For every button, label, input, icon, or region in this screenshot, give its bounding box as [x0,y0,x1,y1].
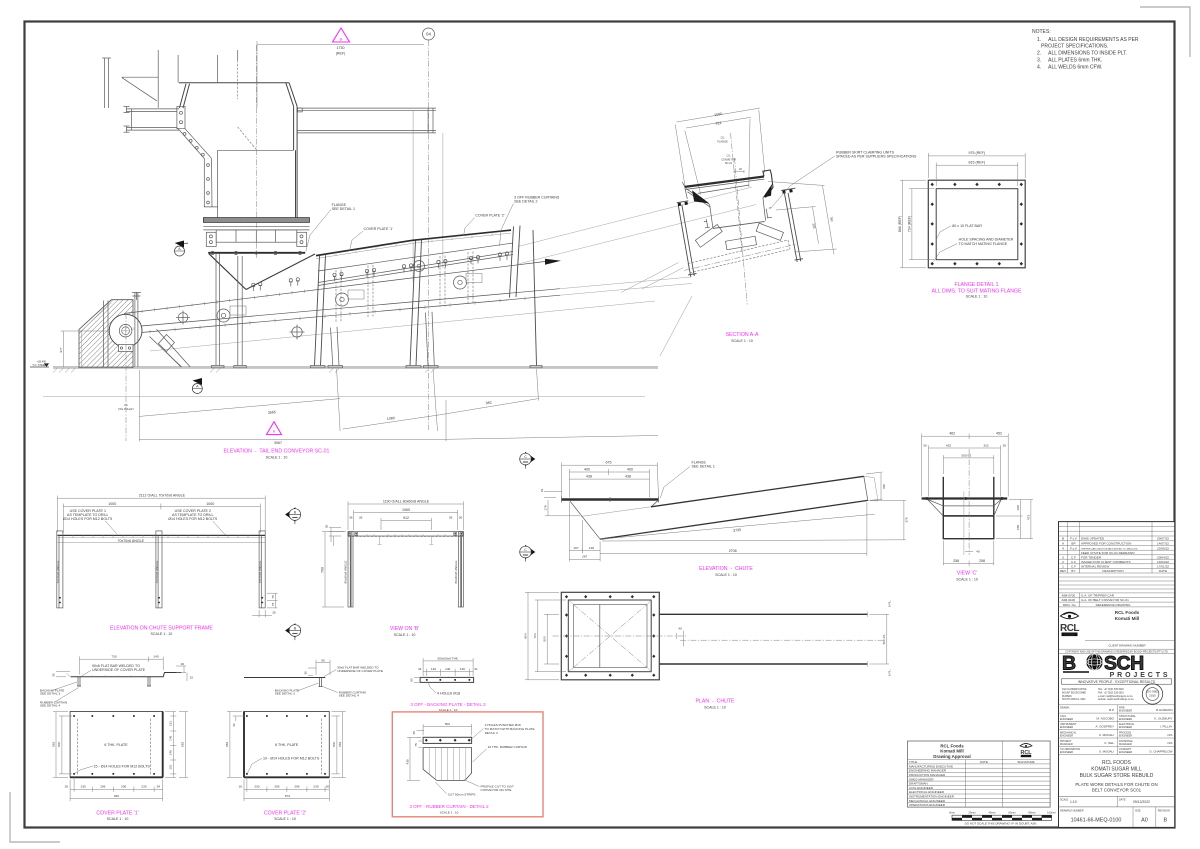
svg-text:e-mail: mail@boschprojects.co.: e-mail: mail@boschprojects.co.za [1098,695,1133,698]
svg-text:80mm: 80mm [1028,811,1035,815]
svg-text:website: www.boschholdings.co.: website: www.boschholdings.co.za [1098,698,1134,701]
svg-text:BELT CONVEYOR SC01: BELT CONVEYOR SC01 [1092,788,1142,793]
svg-text:TO MATCH MATING FLANGE: TO MATCH MATING FLANGE [959,242,1008,246]
svg-text:D. CHAPPELOW: D. CHAPPELOW [1149,750,1172,754]
svg-text:COVER PLATE '1': COVER PLATE '1' [364,227,394,231]
svg-text:KOMATI SUGAR MILL: KOMATI SUGAR MILL [1091,767,1142,773]
svg-text:PROJECTS: PROJECTS [1110,672,1171,679]
svg-text:500: 500 [445,722,450,726]
svg-text:C.F: C.F [1071,565,1076,569]
svg-text:UNDERSIDE OF COVER PLATE: UNDERSIDE OF COVER PLATE [337,669,383,673]
svg-text:258: 258 [979,559,985,563]
svg-text:ELEVATION - TAIL END CONVEYO: ELEVATION - TAIL END CONVEYOR SC-01 [224,448,330,454]
svg-text:22/06/22: 22/06/22 [1157,546,1169,550]
svg-text:0mm: 0mm [949,811,955,815]
svg-text:B: B [340,37,343,42]
svg-text:438: 438 [625,475,631,479]
svg-text:04: 04 [426,32,431,37]
svg-text:SCALE 1 : 10: SCALE 1 : 10 [151,632,173,636]
svg-text:PLATE WORK DETAILS FOR CHUTE O: PLATE WORK DETAILS FOR CHUTE ON [1075,782,1157,787]
svg-text:COVER PLATE '2': COVER PLATE '2' [264,811,306,817]
svg-text:25: 25 [412,731,416,735]
svg-text:267: 267 [582,555,587,559]
svg-text:3: 3 [1062,555,1064,559]
svg-text:258: 258 [953,559,959,563]
svg-text:30: 30 [304,671,308,675]
svg-text:C/L: C/L [726,154,731,158]
svg-text:2112 O/ALL 70x70x6 ANGLE: 2112 O/ALL 70x70x6 ANGLE [139,494,186,498]
svg-text:4 HOLES Ø18: 4 HOLES Ø18 [437,692,460,696]
svg-text:U. MUDALI: U. MUDALI [1099,733,1114,737]
svg-text:4. ALL WELDS 6mm CFW.: 4. ALL WELDS 6mm CFW. [1037,65,1102,71]
svg-text:4: 4 [1062,546,1064,550]
svg-text:473: 473 [1026,515,1030,520]
svg-text:I. PILLAY: I. PILLAY [1160,725,1172,729]
svg-text:DIMS UPDATED: DIMS UPDATED [1081,537,1105,541]
svg-text:C/L: C/L [124,403,129,407]
svg-text:140: 140 [153,655,158,659]
svg-text:866 (REF): 866 (REF) [898,216,902,233]
svg-text:1: 1 [1062,565,1064,569]
svg-text:40mm: 40mm [988,811,995,815]
svg-text:90: 90 [321,658,325,662]
svg-text:14/07/22: 14/07/22 [1157,541,1169,545]
svg-text:TITLE: TITLE [909,760,917,764]
svg-text:ENGINEER: ENGINEER [1119,710,1132,713]
svg-text:168: 168 [1016,505,1020,510]
svg-text:K. NEL: K. NEL [1104,741,1114,745]
svg-text:235: 235 [1016,525,1020,530]
svg-text:SCALE 1 : 10: SCALE 1 : 10 [966,295,988,299]
svg-text:146: 146 [431,667,436,671]
svg-text:40: 40 [678,627,682,631]
svg-text:B.P: B.P [1109,708,1114,712]
svg-text:Ø14 HOLES FOR M12 BOLTS: Ø14 HOLES FOR M12 BOLTS [168,517,218,521]
svg-text:RCL Foods: RCL Foods [1115,610,1140,615]
svg-text:40: 40 [181,662,185,666]
svg-text:20/04/22: 20/04/22 [1157,555,1169,559]
svg-text:CLIENT DRAWING NUMBER: CLIENT DRAWING NUMBER [1109,644,1146,648]
svg-text:500 I/S: 500 I/S [882,635,886,645]
svg-text:ENGINEER: ENGINEER [1060,718,1073,721]
svg-text:190: 190 [589,546,594,550]
svg-text:DATE: DATE [1119,798,1126,801]
svg-text:FLANGE DETAIL 1: FLANGE DETAIL 1 [954,282,998,288]
svg-text:20mm: 20mm [968,811,975,815]
svg-text:SCALE 1 : 10: SCALE 1 : 10 [394,633,416,637]
svg-text:60mm: 60mm [1008,811,1015,815]
svg-text:MANAGER: MANAGER [1060,743,1073,746]
svg-text:NOTES:: NOTES: [1032,29,1051,35]
svg-text:3735: 3735 [733,528,741,533]
svg-text:652: 652 [51,742,55,747]
svg-text:2015: 2015 [1149,694,1156,698]
svg-text:75: 75 [271,595,275,599]
svg-text:SEE DETAIL 4: SEE DETAIL 4 [40,704,60,708]
svg-text:PROJECT SPECIFICATIONS.: PROJECT SPECIFICATIONS. [1041,44,1108,50]
svg-text:30: 30 [1003,444,1007,448]
svg-text:DETAIL 3: DETAIL 3 [485,731,498,735]
svg-text:C.F: C.F [1071,555,1076,559]
svg-text:206: 206 [274,784,279,788]
svg-text:2: 2 [1062,560,1064,564]
svg-text:70x70x6 ANGLE: 70x70x6 ANGLE [118,539,145,543]
svg-text:CONVEYOR ON SITE: CONVEYOR ON SITE [481,788,512,792]
svg-text:ALL DIMS. TO SUIT MATING FLANG: ALL DIMS. TO SUIT MATING FLANGE [932,288,1022,294]
svg-text:SEE DETAIL 1: SEE DETAIL 1 [332,207,355,211]
svg-text:SEE DETAIL 1: SEE DETAIL 1 [692,465,715,469]
svg-text:TEL: +27 (0)31 535 6000: TEL: +27 (0)31 535 6000 [1098,689,1124,691]
svg-text:435: 435 [405,759,409,764]
svg-text:75: 75 [414,743,418,747]
svg-text:VIEW ON 'B': VIEW ON 'B' [390,626,419,632]
svg-text:23A FLANDERS DRIVE: 23A FLANDERS DRIVE [1062,688,1087,691]
svg-text:FOR TENDER: FOR TENDER [1081,555,1102,559]
svg-text:167: 167 [573,546,578,550]
svg-text:912: 912 [403,516,409,520]
svg-text:50: 50 [410,678,414,682]
svg-text:30: 30 [326,784,330,788]
svg-text:SCALE 1 : 10: SCALE 1 : 10 [266,455,288,459]
svg-text:36: 36 [349,516,353,520]
svg-text:ENGINEER: ENGINEER [1119,735,1132,738]
svg-text:500: 500 [543,636,547,641]
svg-text:146: 146 [169,750,173,755]
svg-text:DO NOT SCALE THIS DRAWING- IF: DO NOT SCALE THIS DRAWING- IF IN DOUBT, … [965,822,1038,826]
svg-text:+28.490: +28.490 [37,360,47,364]
svg-text:730: 730 [111,655,116,659]
svg-text:500x50x6 THK.: 500x50x6 THK. [437,656,458,660]
svg-text:ISSUED FOR CLIENT COMMENTS: ISSUED FOR CLIENT COMMENTS [1081,560,1131,564]
svg-text:SCALE: SCALE [1060,798,1069,801]
svg-text:400: 400 [627,468,633,472]
svg-text:COVER PLATE '2': COVER PLATE '2' [475,213,505,217]
svg-text:CUT 50mm STRIPS: CUT 50mm STRIPS [448,792,476,796]
svg-text:09/12/2022: 09/12/2022 [1133,800,1150,804]
svg-text:206: 206 [294,784,299,788]
svg-text:G.A. OF TRIPPER CAR: G.A. OF TRIPPER CAR [1081,594,1115,598]
svg-text:70x70x6 ANGLE: 70x70x6 ANGLE [155,561,159,584]
svg-text:15 - Ø14 HOLES FOR M12 BOLTS: 15 - Ø14 HOLES FOR M12 BOLTS [94,764,151,768]
svg-text:INTERNAL REVIEW: INTERNAL REVIEW [1081,565,1109,569]
svg-text:1190 O/ALL 80x60x8 ANGLE: 1190 O/ALL 80x60x8 ANGLE [383,499,430,503]
svg-text:500: 500 [332,742,336,747]
svg-text:178: 178 [543,505,547,510]
svg-text:146: 146 [460,667,465,671]
svg-text:80x60x8 ANGLE: 80x60x8 ANGLE [454,561,458,584]
svg-text:M. NGCOBO: M. NGCOBO [1096,716,1114,720]
svg-text:6 PL.: 6 PL. [887,600,891,607]
svg-text:3 OFF - RUBBER CURTAIN - DETAI: 3 OFF - RUBBER CURTAIN - DETAIL 2 [409,804,489,809]
svg-text:10461-66-MEQ-0100: 10461-66-MEQ-0100 [1071,818,1122,824]
svg-text:700: 700 [320,567,324,573]
svg-text:80x60x8 ANGLE: 80x60x8 ANGLE [344,561,348,584]
svg-text:FLANGE: FLANGE [717,139,728,143]
svg-text:1. ALL DESIGN REQUIREMENTS: 1. ALL DESIGN REQUIREMENTS AS PER [1037,37,1139,43]
svg-text:6 THK. PLATE: 6 THK. PLATE [275,743,299,747]
svg-text:SPACED AS PER SUPPLIERS SPECIF: SPACED AS PER SUPPLIERS SPECIFICATIONS [836,155,917,159]
svg-text:1:10: 1:10 [1070,800,1077,804]
svg-text:230: 230 [81,784,86,788]
svg-text:100mm: 100mm [1047,811,1056,815]
svg-text:DRAWING NUMBER: DRAWING NUMBER [1060,809,1084,812]
svg-text:75: 75 [271,602,275,606]
svg-text:SCALE 1 : 10: SCALE 1 : 10 [704,706,726,710]
svg-text:TAIL PULLEY: TAIL PULLEY [118,407,134,411]
svg-text:DRAWN: DRAWN [1060,707,1070,710]
svg-text:652: 652 [338,742,342,747]
svg-text:F.v.V: F.v.V [1070,546,1078,550]
svg-text:SIZE: SIZE [1135,809,1141,812]
svg-text:REV: REV [1060,569,1067,573]
svg-text:(REF): (REF) [336,52,346,56]
svg-text:432: 432 [946,444,951,448]
svg-text:70x70x6 ANGLE: 70x70x6 ANGLE [258,561,262,584]
svg-text:1730: 1730 [337,46,345,50]
svg-text:734 (REF): 734 (REF) [907,216,911,233]
svg-text:36: 36 [359,516,363,520]
svg-text:FEED CHUTE FOR SC-01 REDRAWN: FEED CHUTE FOR SC-01 REDRAWN [1081,551,1135,555]
svg-text:31: 31 [474,667,478,671]
svg-text:151: 151 [169,764,173,769]
svg-text:872: 872 [285,794,290,798]
svg-text:APPROVED FOR CONSTRUCTION: APPROVED FOR CONSTRUCTION [1081,541,1131,545]
svg-text:ELEVATION - CHUTE: ELEVATION - CHUTE [699,566,753,572]
svg-text:975 (REF): 975 (REF) [969,151,986,155]
svg-text:977: 977 [59,347,63,352]
svg-text:438: 438 [586,475,592,479]
svg-text:54: 54 [157,784,161,788]
svg-text:206: 206 [121,784,126,788]
svg-text:230: 230 [254,784,259,788]
svg-text:3067: 3067 [274,441,282,445]
svg-text:ENGINEER: ENGINEER [1119,726,1132,729]
svg-text:BP: BP [1071,541,1075,545]
svg-text:500 I/S: 500 I/S [961,453,971,457]
svg-text:HOLE SPACING AND DIAMETER: HOLE SPACING AND DIAMETER [959,238,1014,242]
svg-text:N/A: N/A [1167,733,1172,737]
svg-text:375: 375 [905,517,909,522]
svg-text:A. GODFREY: A. GODFREY [1095,725,1114,729]
svg-text:Komati Mill: Komati Mill [1115,616,1140,621]
svg-text:REFERENCE DRAWING: REFERENCE DRAWING [1096,603,1131,607]
svg-text:2708: 2708 [729,549,737,553]
svg-text:400: 400 [584,468,590,472]
svg-text:SEE DETAIL 2: SEE DETAIL 2 [514,200,537,204]
svg-text:652: 652 [225,742,229,747]
svg-text:30: 30 [52,673,56,677]
svg-text:ENGINEER: ENGINEER [1119,718,1132,721]
svg-text:462: 462 [949,432,955,436]
svg-text:35: 35 [272,611,276,615]
svg-text:30: 30 [923,444,927,448]
svg-text:146: 146 [169,735,173,740]
svg-text:6 THK. PLATE: 6 THK. PLATE [104,743,128,747]
svg-text:3 OFF - BACKING PLATE - DETAIL: 3 OFF - BACKING PLATE - DETAIL 3 [410,702,486,707]
svg-text:675: 675 [606,461,612,465]
svg-text:SC-01: SC-01 [725,161,733,165]
svg-text:FOODS: FOODS [1065,633,1075,637]
svg-text:3565: 3565 [268,410,276,415]
svg-text:ENGINEER: ENGINEER [1060,735,1073,738]
svg-text:30: 30 [239,784,243,788]
svg-text:724: 724 [533,633,537,638]
svg-text:15: 15 [190,676,194,680]
svg-text:SCALE 1 : 10: SCALE 1 : 10 [715,573,737,577]
svg-text:10 THK. RUBBER CURTAIN: 10 THK. RUBBER CURTAIN [488,745,527,749]
svg-text:206: 206 [100,784,105,788]
svg-text:BY: BY [1071,569,1075,573]
svg-text:SEE DETAIL 3: SEE DETAIL 3 [275,692,295,696]
svg-text:RCL FOODS: RCL FOODS [1102,760,1132,766]
svg-text:B: B [1062,537,1064,541]
svg-text:CONVEYOR: CONVEYOR [721,157,736,161]
svg-text:A0: A0 [1141,818,1148,824]
svg-text:70x70x6 ANGLE: 70x70x6 ANGLE [56,561,60,584]
svg-text:-MM-0100: -MM-0100 [1061,598,1075,602]
svg-text:SCALE 1 : 10: SCALE 1 : 10 [731,339,753,343]
svg-text:1060: 1060 [402,508,410,512]
svg-text:DESCRIPTION: DESCRIPTION [1102,569,1123,573]
svg-text:PLAN - CHUTE: PLAN - CHUTE [696,699,735,705]
svg-text:36: 36 [459,516,463,520]
svg-text:15: 15 [540,489,544,493]
svg-text:SEE DETAIL 4: SEE DETAIL 4 [339,694,359,698]
svg-text:151: 151 [169,721,173,726]
svg-text:DURBAN: DURBAN [1062,695,1072,698]
svg-text:80 x 10 FLAT BAR: 80 x 10 FLAT BAR [952,224,982,228]
svg-text:R.HOMANN: R.HOMANN [1156,708,1172,712]
svg-text:-MM-0700: -MM-0700 [1061,594,1075,598]
svg-text:G.A. OF BELT CONVEYOR SC-01: G.A. OF BELT CONVEYOR SC-01 [1081,598,1129,602]
svg-text:2. ALL DIMENSIONS TO INSID: 2. ALL DIMENSIONS TO INSIDE PLT. [1037,51,1127,57]
svg-text:230: 230 [313,784,318,788]
svg-text:452: 452 [996,432,1002,436]
svg-text:1000: 1000 [206,502,214,506]
svg-text:31: 31 [418,667,422,671]
svg-text:MOUNT EDGECOMBE: MOUNT EDGECOMBE [1062,692,1086,694]
svg-text:FAX: +27 (0)31 535 6010: FAX: +27 (0)31 535 6010 [1098,691,1124,694]
svg-text:36: 36 [449,516,453,520]
svg-text:29/07/22: 29/07/22 [1157,537,1169,541]
svg-text:C.F: C.F [1071,560,1076,564]
svg-text:30: 30 [232,723,236,727]
svg-text:SCALE 1 : 10: SCALE 1 : 10 [440,810,459,814]
svg-text:SIGNATURE: SIGNATURE [1017,760,1034,764]
svg-text:U. MUDALI: U. MUDALI [1099,750,1114,754]
svg-text:FOODS: FOODS [1023,756,1030,758]
svg-text:1000: 1000 [108,502,116,506]
svg-text:3. ALL PLATES 6mm THK.: 3. ALL PLATES 6mm THK. [1037,58,1102,64]
svg-text:N/A: N/A [1167,741,1172,745]
svg-text:INNOVATIVE PEOPLE . EXCEPTIONA: INNOVATIVE PEOPLE . EXCEPTIONAL RESULTS [1078,680,1156,684]
svg-text:SCALE 1 : 10: SCALE 1 : 10 [439,708,458,712]
svg-text:SEE DETAIL 3: SEE DETAIL 3 [40,692,60,696]
svg-text:SCALE 1 : 10: SCALE 1 : 10 [107,817,129,821]
svg-text:C: C [524,455,527,459]
svg-text:ENGINEER: ENGINEER [1060,751,1073,754]
svg-text:936: 936 [114,794,119,798]
svg-text:UNDERSIDE OF COVER PLATE: UNDERSIDE OF COVER PLATE [92,668,146,672]
svg-text:COVER PLATE '1': COVER PLATE '1' [96,811,138,817]
svg-text:40: 40 [976,550,980,554]
svg-text:SCALE 1 : 10: SCALE 1 : 10 [956,577,978,581]
svg-text:K. OLDBURY: K. OLDBURY [1154,716,1172,720]
svg-text:815 (REF): 815 (REF) [969,160,986,164]
svg-text:OPERATIONS ENGINEER: OPERATIONS ENGINEER [909,803,946,807]
svg-text:REVISION: REVISION [1158,809,1170,812]
svg-text:B: B [1163,818,1167,824]
svg-text:230: 230 [141,784,146,788]
svg-text:C/L: C/L [721,136,726,140]
svg-text:804: 804 [523,633,527,638]
svg-text:10 - Ø14 HOLES FOR M12 BOLTS: 10 - Ø14 HOLES FOR M12 BOLTS [263,757,320,761]
svg-text:322: 322 [983,444,988,448]
svg-text:30: 30 [65,784,69,788]
svg-text:35: 35 [325,525,329,529]
svg-text:DATE: DATE [980,760,988,764]
svg-text:C: C [524,548,527,552]
svg-text:Ø14 HOLES FOR M12 BOLTS: Ø14 HOLES FOR M12 BOLTS [63,517,113,521]
svg-text:500: 500 [57,742,61,747]
svg-text:VIEW 'C': VIEW 'C' [957,571,977,577]
svg-text:14/03/22: 14/03/22 [1157,560,1169,564]
svg-text:ENGINEER: ENGINEER [1119,751,1132,754]
svg-text:ENGINEER: ENGINEER [1060,726,1073,729]
svg-text:ELEVATION ON CHUTE SUPPORT FRA: ELEVATION ON CHUTE SUPPORT FRAME [110,626,213,632]
svg-text:SECTION A-A: SECTION A-A [726,332,759,338]
svg-text:146: 146 [445,667,450,671]
svg-text:17/01/22: 17/01/22 [1157,565,1169,569]
svg-text:F.v.V: F.v.V [1070,537,1078,541]
svg-text:SOUTH AFRICA, 4302: SOUTH AFRICA, 4302 [1062,698,1086,701]
svg-text:6 PL.: 6 PL. [887,669,891,676]
svg-text:BULK SUGAR STORE REBUILD: BULK SUGAR STORE REBUILD [1080,773,1154,779]
svg-text:DATE: DATE [1159,569,1167,573]
svg-text:DRG. No: DRG. No [1063,603,1076,607]
svg-text:Drawing Approval: Drawing Approval [933,754,970,759]
svg-text:MANAGER: MANAGER [1119,743,1132,746]
svg-text:330: 330 [882,484,886,489]
svg-text:SCALE 1 : 10: SCALE 1 : 10 [274,817,296,821]
svg-text:652: 652 [181,742,185,747]
